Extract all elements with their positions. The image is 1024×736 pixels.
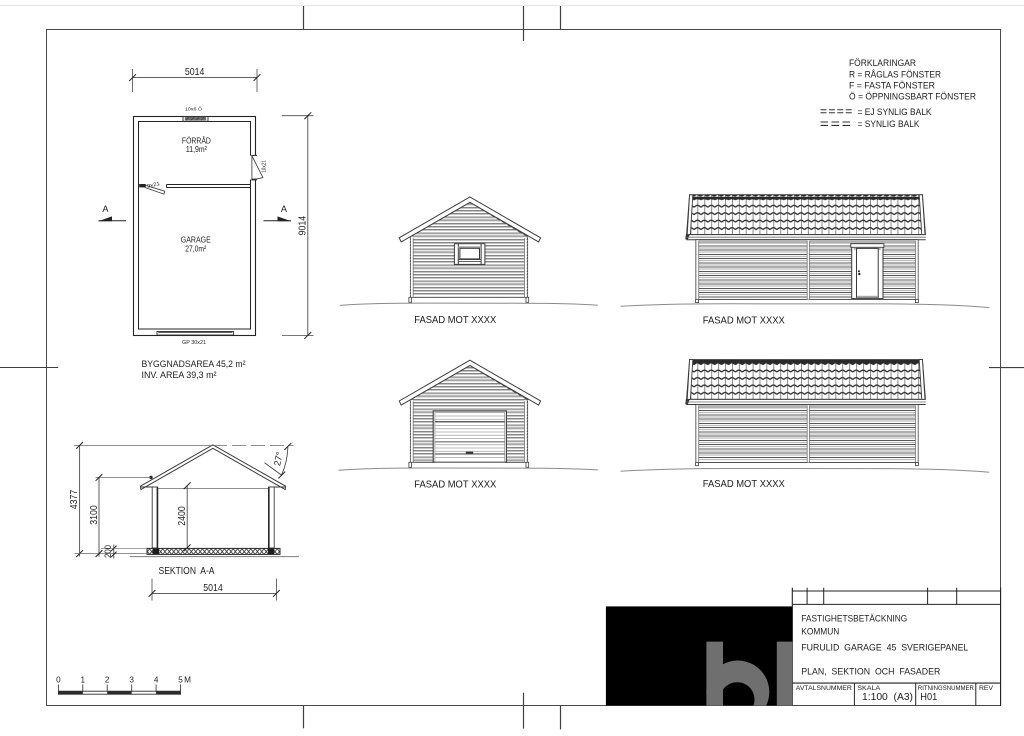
svg-text:A: A	[281, 204, 288, 214]
svg-text:0: 0	[56, 675, 61, 684]
svg-text:A: A	[102, 204, 109, 214]
svg-text:5014: 5014	[203, 582, 223, 594]
svg-text:FASAD MOT XXXX: FASAD MOT XXXX	[703, 479, 786, 490]
svg-text:2400: 2400	[176, 506, 188, 526]
svg-text:F = FASTA FÖNSTER: F = FASTA FÖNSTER	[849, 81, 935, 91]
svg-text:4377: 4377	[68, 490, 80, 510]
svg-text:= SYNLIG BALK: = SYNLIG BALK	[858, 119, 920, 129]
svg-text:5014: 5014	[185, 66, 205, 78]
svg-text:3: 3	[129, 675, 134, 684]
svg-text:BYGGNADSAREA 45,2 m²: BYGGNADSAREA 45,2 m²	[142, 359, 247, 370]
svg-text:GP 30x21: GP 30x21	[182, 340, 206, 346]
svg-text:FASAD MOT XXXX: FASAD MOT XXXX	[414, 479, 497, 490]
svg-text:FASTIGHETSBETÄCKNING: FASTIGHETSBETÄCKNING	[801, 613, 907, 623]
svg-text:REV: REV	[979, 685, 994, 692]
svg-text:FASAD MOT XXXX: FASAD MOT XXXX	[703, 315, 786, 326]
svg-text:27,0m²: 27,0m²	[185, 244, 206, 254]
svg-text:AVTALSNUMMER: AVTALSNUMMER	[796, 685, 852, 692]
svg-text:10x6 Ö: 10x6 Ö	[185, 106, 202, 113]
svg-text:10x21: 10x21	[262, 160, 268, 173]
svg-text:H01: H01	[920, 692, 937, 703]
svg-text:4: 4	[154, 675, 159, 684]
svg-text:= EJ SYNLIG BALK: = EJ SYNLIG BALK	[858, 107, 932, 117]
svg-text:KOMMUN: KOMMUN	[801, 626, 839, 636]
svg-text:9014: 9014	[296, 216, 308, 236]
svg-text:200: 200	[103, 545, 113, 558]
svg-text:5: 5	[178, 675, 183, 684]
svg-text:R = RÅGLAS FÖNSTER: R = RÅGLAS FÖNSTER	[849, 70, 941, 80]
svg-text:3100: 3100	[88, 505, 100, 525]
svg-text:1: 1	[81, 675, 86, 684]
svg-text:FURULID GARAGE 45 SVERIGEPA: FURULID GARAGE 45 SVERIGEPANEL	[801, 643, 968, 653]
svg-text:2: 2	[105, 675, 110, 684]
svg-text:FASAD MOT XXXX: FASAD MOT XXXX	[414, 315, 497, 326]
svg-text:FÖRKLARINGAR: FÖRKLARINGAR	[849, 58, 916, 68]
svg-text:11,9m²: 11,9m²	[186, 144, 207, 154]
svg-text:Ö = ÖPPNINGSBART FÖNSTER: Ö = ÖPPNINGSBART FÖNSTER	[849, 92, 976, 102]
svg-text:1:100 (A3): 1:100 (A3)	[862, 692, 913, 703]
svg-text:M: M	[184, 675, 191, 684]
svg-text:INV. AREA 39,3 m²: INV. AREA 39,3 m²	[142, 370, 218, 381]
svg-text:PLAN, SEKTION OCH FASADER: PLAN, SEKTION OCH FASADER	[801, 667, 940, 677]
svg-text:SEKTION A-A: SEKTION A-A	[159, 566, 215, 577]
